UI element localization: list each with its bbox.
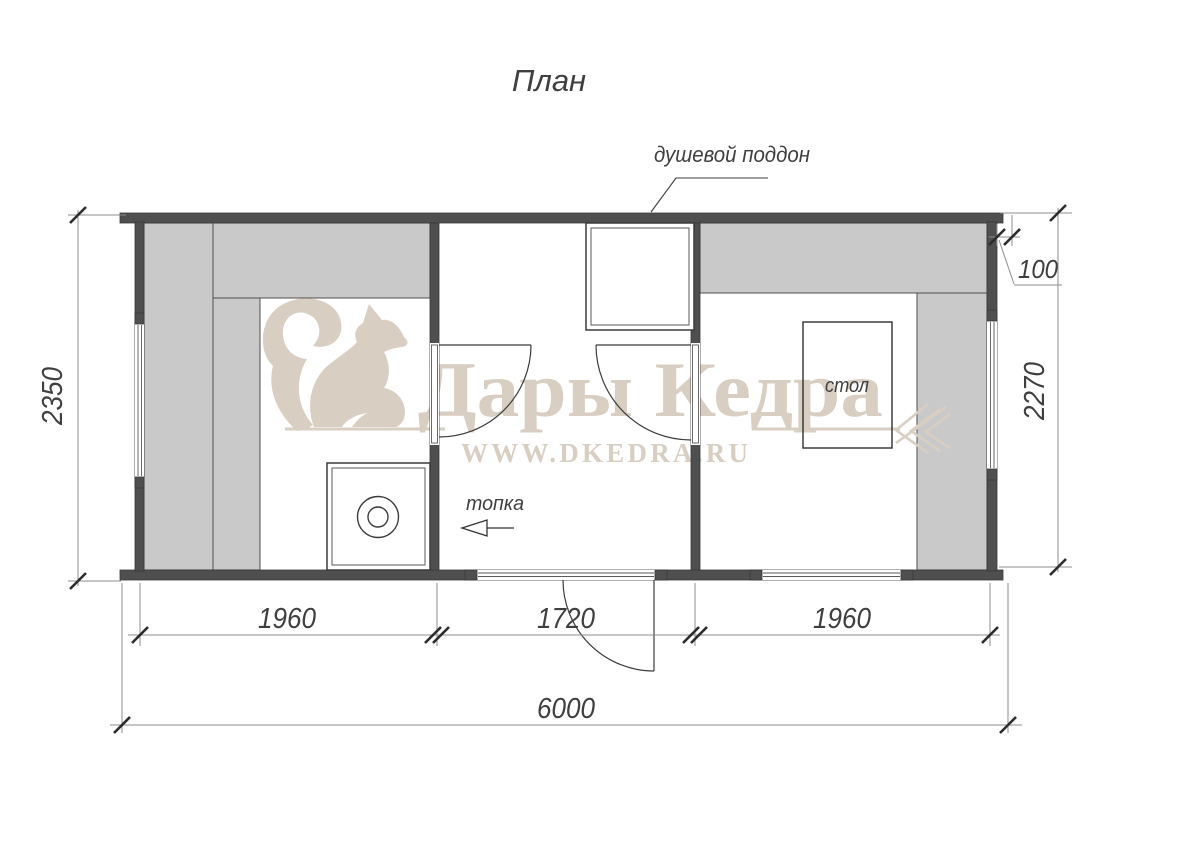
window-left-jamb-top <box>135 313 144 324</box>
label-firebox: топка <box>466 493 524 515</box>
window-bottom-jamb-left <box>750 570 762 580</box>
label-table: стол <box>825 375 869 397</box>
floor-plan-drawing: Дары Кедра WWW.DKEDRA.RU <box>0 0 1200 848</box>
bench-sauna-left <box>144 223 213 570</box>
window-right-jamb-top <box>987 310 997 321</box>
dim-room-sauna: 1960 <box>258 603 316 635</box>
wall-top <box>120 213 1003 223</box>
dim-room-rest: 1960 <box>813 603 871 635</box>
page-title: План <box>512 63 586 98</box>
bench-rest-top <box>700 223 987 293</box>
window-bottom <box>750 570 913 580</box>
window-left <box>135 313 144 488</box>
entrance-opening <box>465 570 667 580</box>
callout-shower-tray: душевой поддон <box>654 142 810 167</box>
bench-sauna-top <box>213 223 430 298</box>
dim-total-width: 6000 <box>537 693 595 725</box>
entrance-jamb-left <box>465 570 477 580</box>
window-right <box>987 310 997 480</box>
watermark-brand: Дары Кедра <box>418 346 883 433</box>
dim-room-washing: 1720 <box>537 603 595 635</box>
dim-right-height: 2270 <box>1019 362 1051 421</box>
floor-plan-page: Дары Кедра WWW.DKEDRA.RU <box>0 0 1200 848</box>
entrance-jamb-right <box>655 570 667 580</box>
doorway-sauna <box>430 343 439 445</box>
dim-left-height: 2350 <box>37 367 69 426</box>
stove <box>327 463 430 570</box>
bench-sauna-side-strip <box>213 298 260 570</box>
window-bottom-jamb-right <box>901 570 913 580</box>
window-left-jamb-bottom <box>135 477 144 488</box>
window-right-jamb-bottom <box>987 469 997 480</box>
shower-tray <box>586 223 694 330</box>
dim-wall-thickness: 100 <box>1018 254 1058 284</box>
doorway-rest <box>691 343 700 445</box>
